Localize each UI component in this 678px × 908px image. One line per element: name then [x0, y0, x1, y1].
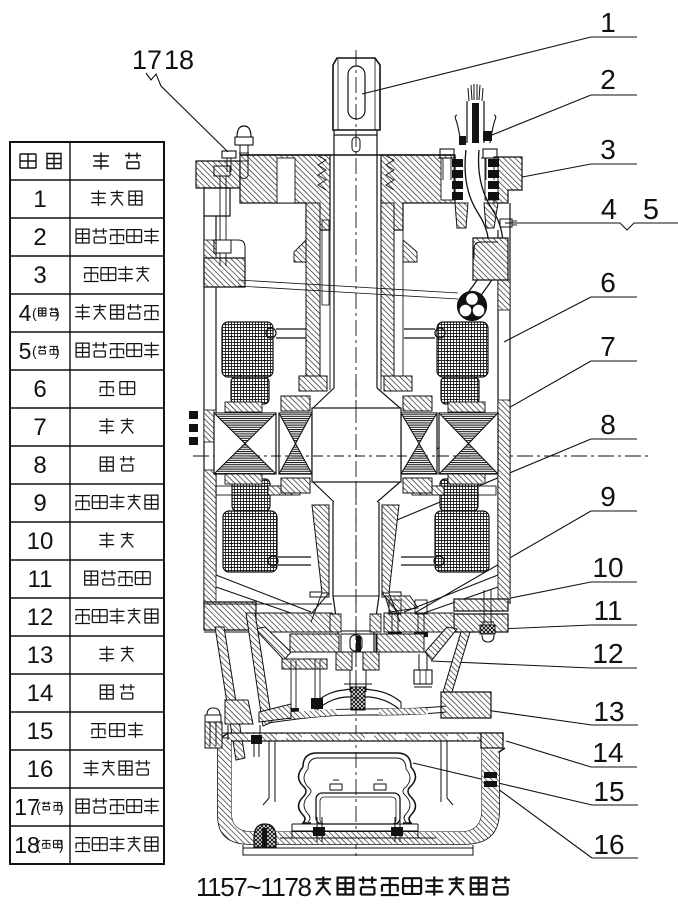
svg-text:8: 8 [33, 452, 46, 479]
svg-text:(: ( [36, 799, 41, 815]
svg-text:12: 12 [27, 604, 54, 631]
svg-text:12: 12 [592, 638, 623, 669]
svg-text:15: 15 [593, 776, 624, 807]
svg-text:7: 7 [600, 331, 616, 362]
svg-text:14: 14 [27, 680, 54, 707]
svg-text:5: 5 [643, 194, 659, 226]
svg-text:18: 18 [164, 45, 194, 75]
svg-text:1: 1 [600, 7, 616, 38]
svg-text:16: 16 [27, 756, 54, 783]
svg-text:(: ( [32, 305, 37, 321]
svg-text:3: 3 [33, 262, 46, 289]
svg-text:6: 6 [33, 376, 46, 403]
svg-text:1157~1178: 1157~1178 [196, 872, 312, 902]
svg-text:9: 9 [600, 481, 616, 512]
svg-text:2: 2 [600, 64, 616, 95]
svg-text:9: 9 [33, 490, 46, 517]
svg-text:11: 11 [593, 595, 622, 626]
svg-text:13: 13 [27, 642, 54, 669]
svg-text:5: 5 [19, 338, 32, 364]
svg-text:3: 3 [600, 134, 616, 165]
svg-text:8: 8 [600, 409, 616, 440]
svg-text:(: ( [36, 837, 41, 853]
svg-text:10: 10 [27, 528, 54, 555]
svg-text:13: 13 [593, 696, 624, 727]
svg-text:1: 1 [33, 186, 46, 213]
svg-text:11: 11 [28, 566, 53, 593]
svg-text:16: 16 [593, 829, 624, 860]
svg-text:10: 10 [592, 552, 623, 583]
svg-text:2: 2 [33, 224, 46, 251]
svg-text:7: 7 [33, 414, 46, 441]
svg-text:): ) [55, 343, 60, 359]
svg-text:): ) [59, 837, 64, 853]
svg-text:): ) [59, 799, 64, 815]
svg-text:6: 6 [600, 267, 616, 298]
svg-text:14: 14 [592, 737, 623, 768]
svg-text:17: 17 [132, 45, 162, 75]
svg-text:(: ( [32, 343, 37, 359]
svg-text:): ) [55, 305, 60, 321]
svg-text:15: 15 [27, 718, 54, 745]
svg-text:4: 4 [601, 194, 617, 226]
svg-text:4: 4 [19, 300, 32, 326]
